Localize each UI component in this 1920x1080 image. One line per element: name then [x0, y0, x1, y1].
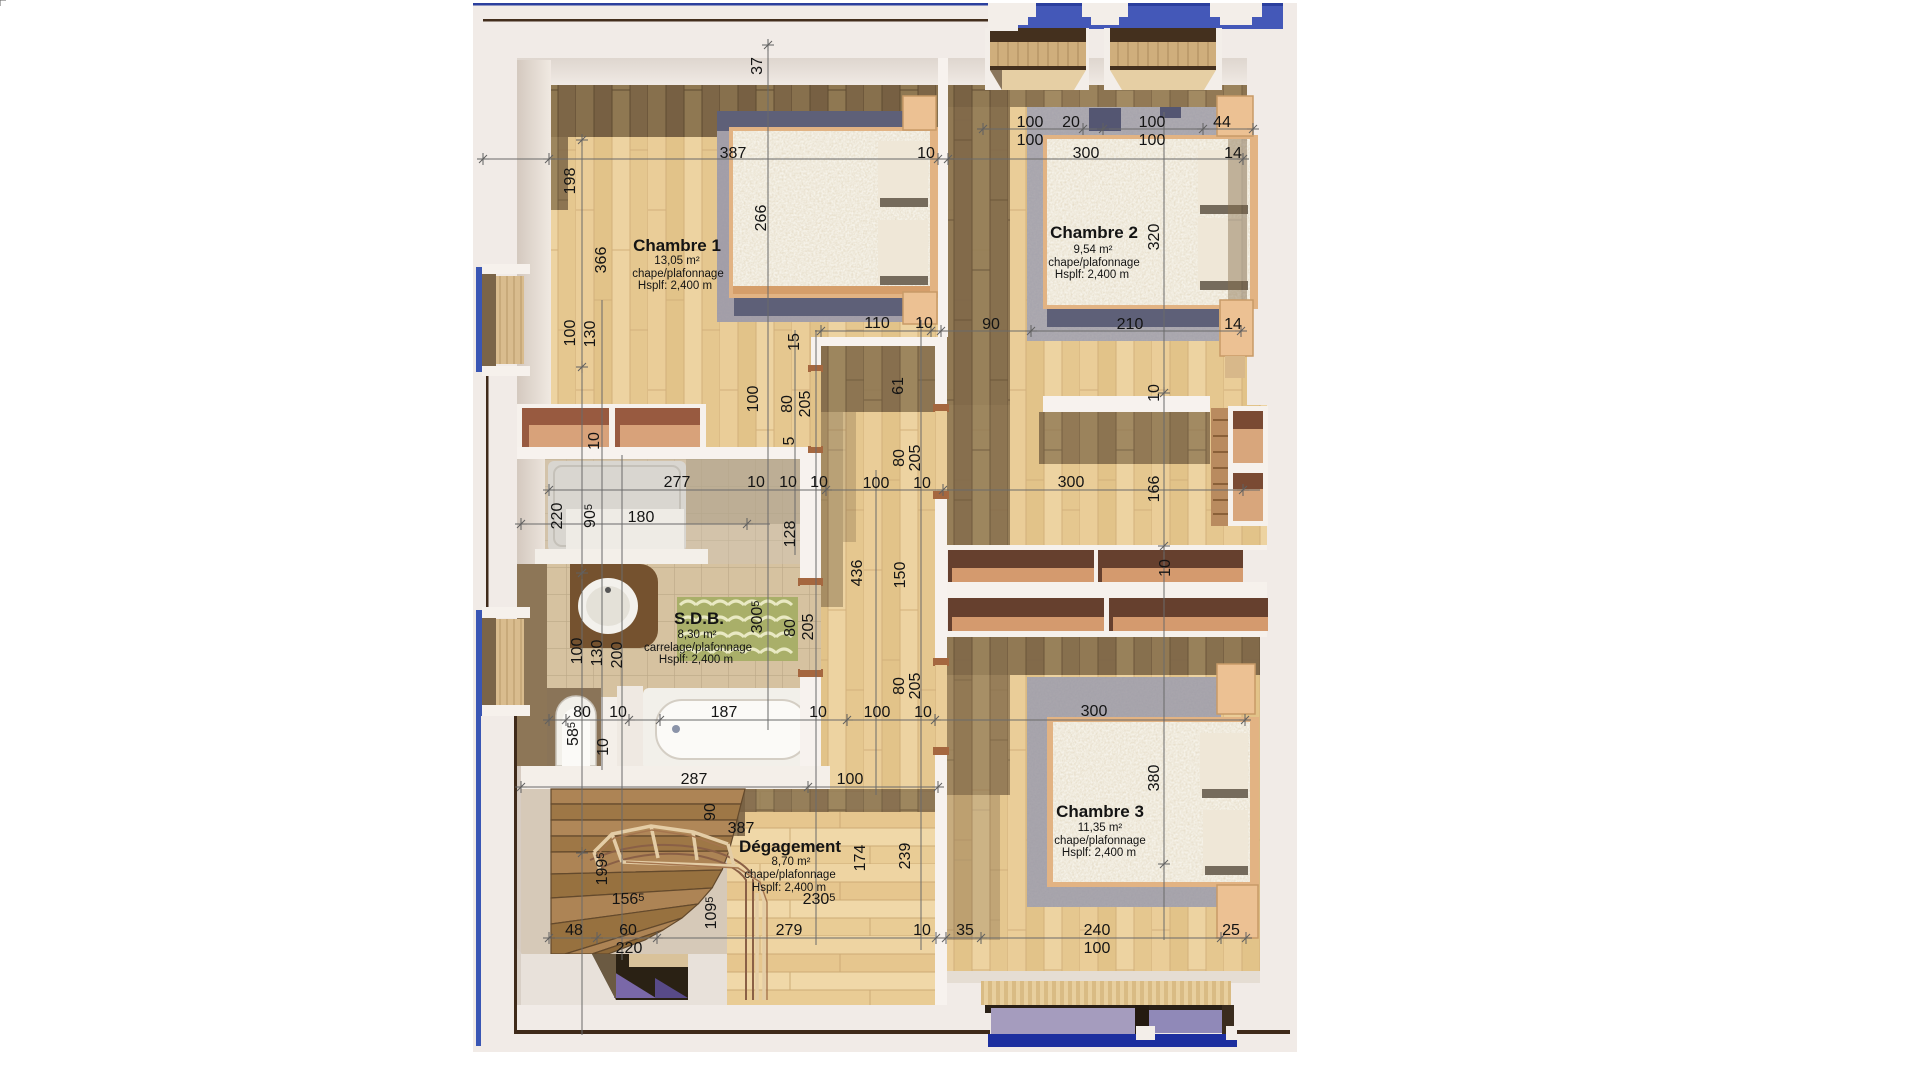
svg-text:100: 100 — [1139, 132, 1166, 149]
svg-text:220: 220 — [549, 503, 566, 530]
svg-text:chape/plafonnage: chape/plafonnage — [1054, 835, 1145, 847]
svg-text:277: 277 — [664, 474, 691, 491]
svg-text:110: 110 — [864, 315, 890, 332]
svg-text:80: 80 — [891, 449, 908, 467]
svg-text:10: 10 — [915, 315, 933, 332]
svg-text:80: 80 — [782, 619, 799, 637]
svg-text:279: 279 — [776, 922, 803, 939]
svg-text:20: 20 — [1062, 114, 1080, 131]
svg-text:37: 37 — [749, 57, 766, 75]
svg-text:carrelage/plafonnage: carrelage/plafonnage — [644, 642, 752, 654]
svg-text:13,05 m²: 13,05 m² — [654, 255, 700, 267]
svg-text:300: 300 — [1073, 145, 1100, 162]
svg-text:210: 210 — [1117, 316, 1144, 333]
svg-text:10: 10 — [747, 474, 765, 491]
svg-text:366: 366 — [593, 247, 610, 274]
svg-text:chape/plafonnage: chape/plafonnage — [632, 268, 723, 280]
svg-text:60: 60 — [619, 922, 637, 939]
svg-text:205: 205 — [800, 614, 817, 641]
svg-text:14: 14 — [1224, 145, 1242, 162]
svg-text:387: 387 — [720, 145, 747, 162]
svg-text:100: 100 — [569, 638, 586, 665]
svg-text:187: 187 — [711, 704, 738, 721]
svg-text:Chambre 3: Chambre 3 — [1056, 802, 1144, 821]
svg-text:100: 100 — [863, 475, 890, 492]
svg-text:100: 100 — [745, 386, 762, 413]
svg-text:80: 80 — [573, 704, 591, 721]
svg-text:128: 128 — [782, 521, 799, 548]
svg-text:10: 10 — [917, 145, 935, 162]
svg-text:9,54 m²: 9,54 m² — [1074, 244, 1113, 256]
svg-text:100: 100 — [1017, 114, 1044, 131]
svg-text:100: 100 — [1017, 132, 1044, 149]
svg-text:10: 10 — [1157, 559, 1174, 577]
svg-text:61: 61 — [890, 377, 907, 395]
svg-text:80: 80 — [891, 677, 908, 695]
svg-text:100: 100 — [562, 320, 579, 347]
svg-text:8,30 m²: 8,30 m² — [678, 629, 717, 641]
svg-text:436: 436 — [849, 560, 866, 587]
svg-text:220: 220 — [616, 940, 643, 957]
svg-text:205: 205 — [907, 445, 924, 472]
svg-text:5: 5 — [781, 436, 798, 445]
svg-text:Hsplf: 2,400 m: Hsplf: 2,400 m — [1062, 847, 1136, 859]
svg-text:287: 287 — [681, 771, 708, 788]
svg-text:35: 35 — [956, 922, 974, 939]
svg-text:240: 240 — [1084, 922, 1111, 939]
svg-text:10: 10 — [595, 738, 612, 756]
svg-text:48: 48 — [565, 922, 583, 939]
svg-text:11,35 m²: 11,35 m² — [1078, 822, 1123, 834]
svg-text:chape/plafonnage: chape/plafonnage — [1048, 257, 1139, 269]
svg-text:10: 10 — [914, 704, 932, 721]
svg-text:Hsplf: 2,400 m: Hsplf: 2,400 m — [659, 654, 733, 666]
svg-text:chape/plafonnage: chape/plafonnage — [744, 869, 835, 881]
svg-text:300: 300 — [1058, 474, 1085, 491]
svg-text:300: 300 — [1081, 703, 1108, 720]
svg-text:205: 205 — [907, 673, 924, 700]
svg-text:90: 90 — [702, 803, 719, 821]
svg-text:198: 198 — [562, 168, 579, 195]
svg-text:14: 14 — [1224, 316, 1242, 333]
svg-text:166: 166 — [1146, 476, 1163, 503]
svg-text:150: 150 — [892, 562, 909, 589]
svg-text:10: 10 — [779, 474, 797, 491]
svg-text:205: 205 — [797, 391, 814, 418]
svg-text:80: 80 — [779, 395, 796, 413]
svg-text:174: 174 — [852, 845, 869, 872]
svg-text:387: 387 — [728, 820, 755, 837]
svg-text:100: 100 — [1084, 940, 1111, 957]
svg-text:15: 15 — [786, 333, 803, 351]
svg-text:Hsplf: 2,400 m: Hsplf: 2,400 m — [1055, 269, 1129, 281]
svg-text:8,70 m²: 8,70 m² — [772, 856, 811, 868]
svg-text:100: 100 — [1139, 114, 1166, 131]
svg-text:10: 10 — [586, 432, 603, 450]
svg-text:10: 10 — [609, 704, 627, 721]
svg-text:S.D.B.: S.D.B. — [674, 609, 724, 628]
svg-text:44: 44 — [1213, 114, 1231, 131]
svg-text:10: 10 — [913, 475, 931, 492]
svg-text:Chambre 2: Chambre 2 — [1050, 223, 1138, 242]
svg-text:10: 10 — [810, 474, 828, 491]
svg-text:10: 10 — [809, 704, 827, 721]
svg-text:200: 200 — [609, 642, 626, 669]
svg-text:380: 380 — [1146, 765, 1163, 792]
svg-text:10: 10 — [1146, 384, 1163, 402]
svg-text:25: 25 — [1222, 922, 1240, 939]
svg-text:100: 100 — [864, 704, 891, 721]
svg-text:Dégagement: Dégagement — [739, 837, 841, 856]
svg-text:90: 90 — [982, 316, 1000, 333]
svg-text:130: 130 — [582, 321, 599, 348]
svg-text:Hsplf: 2,400 m: Hsplf: 2,400 m — [638, 280, 712, 292]
svg-text:130: 130 — [589, 640, 606, 667]
svg-text:Chambre 1: Chambre 1 — [633, 236, 721, 255]
svg-text:180: 180 — [628, 509, 655, 526]
svg-text:239: 239 — [897, 843, 914, 870]
svg-text:100: 100 — [837, 771, 864, 788]
svg-text:10: 10 — [913, 922, 931, 939]
svg-text:320: 320 — [1146, 224, 1163, 251]
svg-text:266: 266 — [753, 205, 770, 232]
